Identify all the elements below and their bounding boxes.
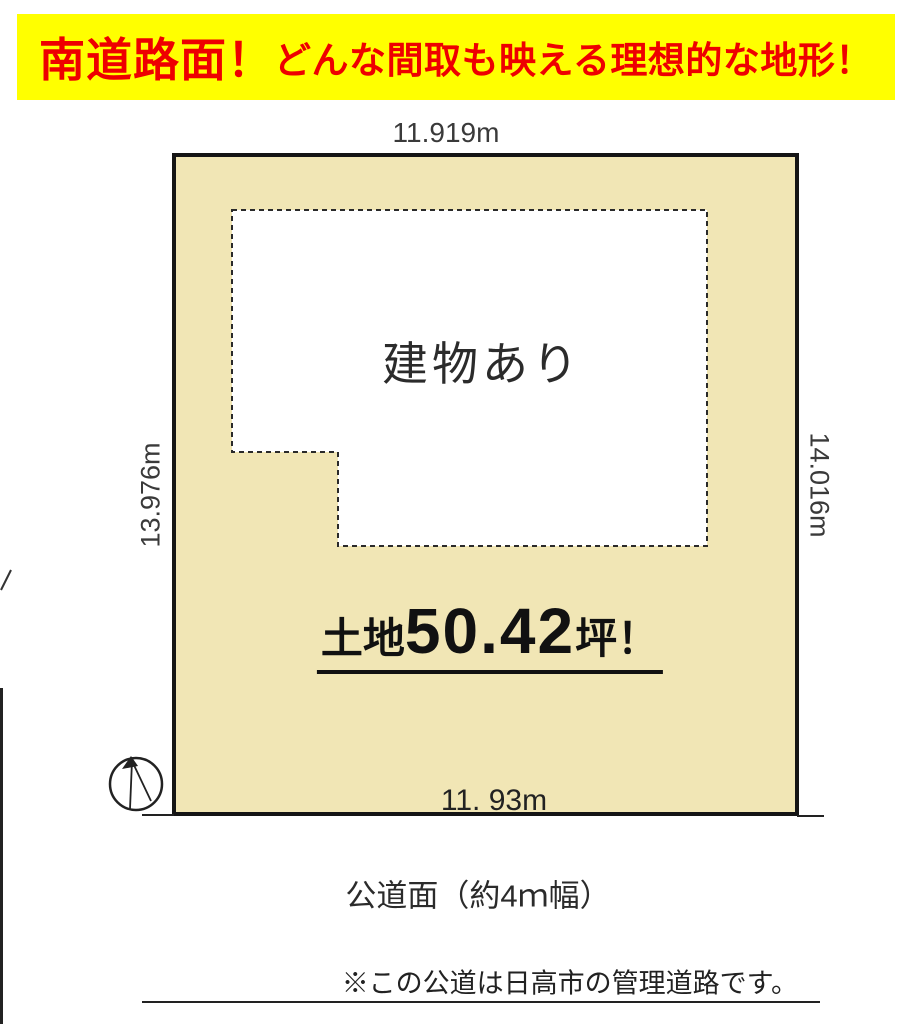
plot-baseline-extension-left <box>142 814 174 816</box>
building-label: 建物あり <box>382 328 582 394</box>
plot-baseline-extension-right <box>797 815 824 817</box>
headline-banner: 南道路面！どんな間取も映える理想的な地形！ <box>17 14 895 100</box>
road-frontage-label: 公道面（約4ｍ幅） <box>345 871 610 916</box>
land-area-label: 土地50.42坪！ <box>317 594 663 674</box>
building-outline <box>176 157 795 812</box>
road-management-note: ※この公道は日高市の管理道路です。 <box>342 962 798 1001</box>
headline-sub: どんな間取も映える理想的な地形！ <box>274 30 873 84</box>
area-prefix: 土地 <box>321 615 405 662</box>
dimension-top: 11.919m <box>393 117 500 149</box>
north-compass-icon <box>105 753 167 815</box>
dimension-left: 13.976m <box>136 442 167 547</box>
land-plot-diagram: 南道路面！どんな間取も映える理想的な地形！ 11.919m 建物あり 土地50.… <box>0 0 920 1024</box>
land-parcel: 建物あり 土地50.42坪！ 11. 93m <box>172 153 799 816</box>
area-suffix: 坪！ <box>575 615 659 662</box>
headline-main: 南道路面！ <box>39 24 274 90</box>
dimension-bottom: 11. 93m <box>441 784 547 818</box>
left-edge-tick <box>0 568 14 594</box>
road-edge-line <box>142 1001 820 1003</box>
area-value: 50.42 <box>405 595 575 667</box>
dimension-right: 14.016m <box>804 432 835 537</box>
left-edge-line <box>0 688 3 1024</box>
